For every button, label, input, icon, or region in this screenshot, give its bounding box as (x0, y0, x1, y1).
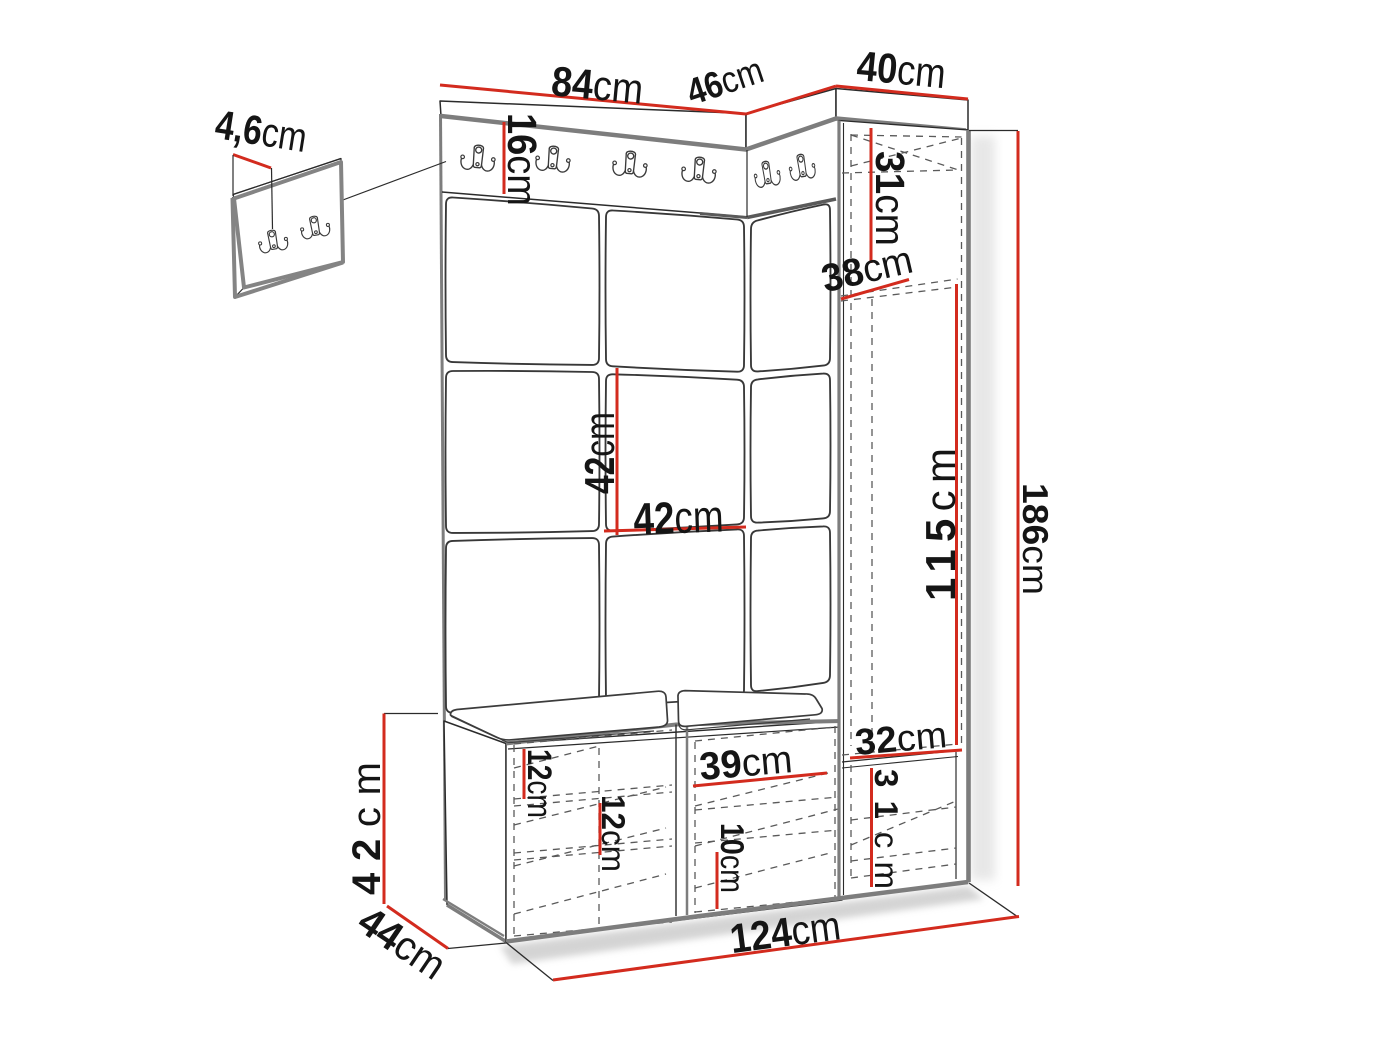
svg-text:42cm: 42cm (576, 412, 623, 494)
svg-text:12cm: 12cm (520, 749, 558, 818)
svg-text:32cm: 32cm (853, 714, 948, 763)
svg-text:39cm: 39cm (698, 738, 794, 789)
svg-text:84cm: 84cm (549, 57, 645, 112)
svg-text:31cm: 31cm (867, 151, 913, 246)
svg-text:186cm: 186cm (1015, 483, 1056, 595)
svg-text:12cm: 12cm (595, 795, 632, 872)
svg-text:42cm: 42cm (633, 490, 725, 544)
svg-text:10cm: 10cm (714, 823, 751, 893)
svg-text:16cm: 16cm (499, 113, 545, 206)
svg-text:40cm: 40cm (855, 42, 948, 97)
